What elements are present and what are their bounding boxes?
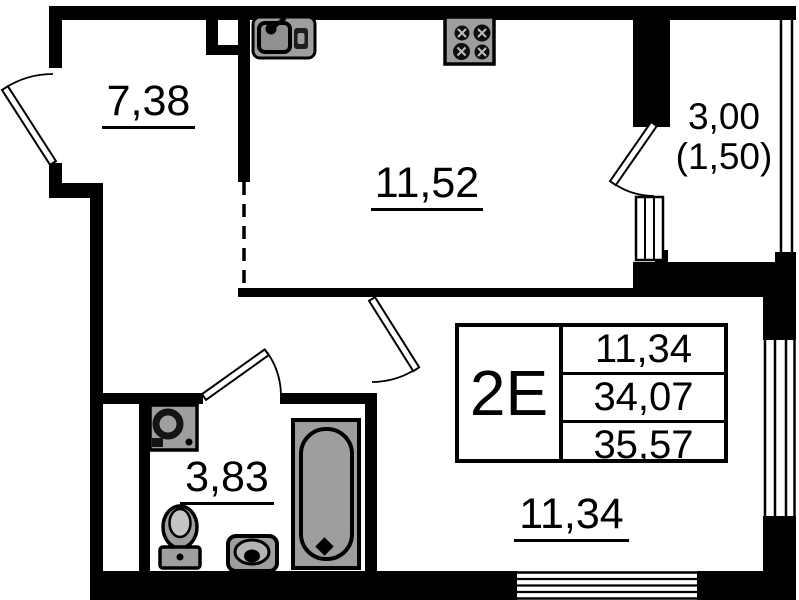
balcony-door [610, 122, 657, 196]
left-wall-upper [49, 6, 62, 68]
bathroom-top-wall-left [103, 393, 203, 404]
bathroom-door-leaf [202, 349, 269, 399]
entrance-door-leaf [2, 86, 56, 165]
entrance-door-arc [5, 74, 53, 88]
kitchen-living-wall [238, 288, 763, 297]
living-room-door [369, 297, 419, 382]
kitchen-area-label: 11,52 [371, 162, 483, 211]
washing-machine-icon [150, 405, 197, 450]
floor-plan: 7,38 11,52 3,83 11,34 3,00 (1,50) 2E 11,… [0, 0, 799, 600]
hallway-kitchen-stub [238, 20, 250, 182]
bottom-wall-left [90, 571, 517, 600]
balcony-bottom-wall [633, 262, 796, 290]
balcony-glazing-window [781, 18, 792, 262]
toilet-icon [160, 506, 200, 568]
unit-living-area-value: 11,34 [563, 327, 724, 372]
unit-area-value: 34,07 [563, 372, 724, 420]
stove-icon [445, 17, 494, 64]
balcony-door-arc [613, 183, 654, 196]
entrance-door [2, 74, 56, 165]
unit-type-label: 2E [459, 327, 563, 459]
living-room-door-arc [372, 369, 416, 382]
kitchen-balcony-window [636, 197, 663, 260]
bathtub-icon [293, 420, 359, 568]
living-room-bottom-window [517, 571, 697, 600]
living-room-door-leaf [369, 297, 419, 371]
hallway-area-label: 7,38 [102, 80, 195, 129]
balcony-door-leaf [610, 122, 657, 185]
bathroom-area-label: 3,83 [180, 456, 274, 505]
right-wall-lower [763, 516, 796, 600]
living-room-area-label: 11,34 [514, 493, 629, 542]
kitchen-balcony-wall [633, 6, 670, 127]
balcony-area-total: 3,00 [666, 97, 782, 137]
bathroom-sink-icon [228, 536, 277, 571]
unit-spec-table: 2E 11,34 34,07 35,57 [455, 323, 728, 463]
top-wall [49, 6, 796, 20]
bathroom-door [202, 349, 281, 399]
kitchen-sink-icon [253, 17, 315, 58]
balcony-area-reduced: (1,50) [666, 137, 782, 177]
right-wall-upper [763, 290, 796, 340]
unit-total-area-value: 35,57 [563, 420, 724, 468]
left-wall-lower [90, 183, 103, 600]
bathroom-top-wall-right [280, 393, 377, 404]
balcony-area-label: 3,00 (1,50) [666, 97, 782, 177]
unit-spec-rows: 11,34 34,07 35,57 [563, 327, 724, 459]
bathroom-right-wall [365, 393, 377, 573]
bathroom-door-arc [267, 352, 281, 397]
living-room-right-window [763, 340, 796, 516]
